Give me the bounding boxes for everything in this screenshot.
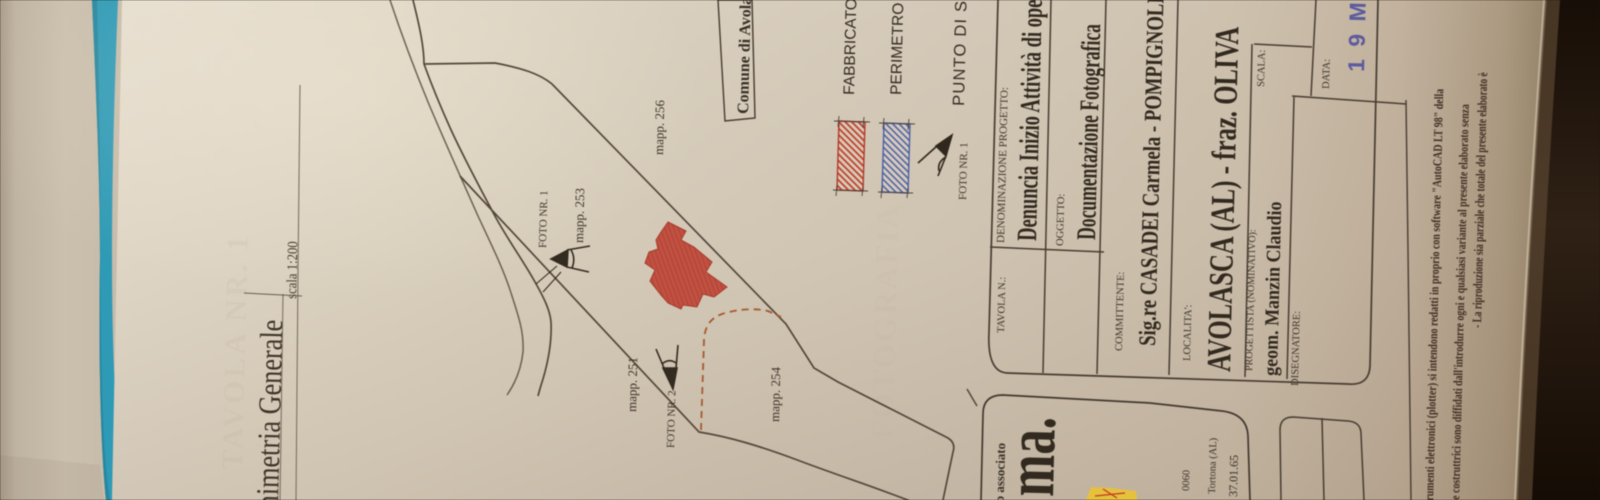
- svg-text:ma.: ma.: [992, 416, 1071, 498]
- svg-text:SCALA:: SCALA:: [1256, 49, 1268, 87]
- svg-text:FOTO NR. 2: FOTO NR. 2: [665, 390, 678, 448]
- svg-text:mapp. 251: mapp. 251: [624, 357, 640, 412]
- svg-text:mapp. 254: mapp. 254: [767, 366, 783, 422]
- svg-text:TAVOLA NR. 1: TAVOLA NR. 1: [216, 233, 255, 471]
- svg-text:1 9 MAG. 2005: 1 9 MAG. 2005: [1343, 0, 1374, 72]
- svg-text:FOTOGRAFIA: FOTOGRAFIA: [864, 203, 906, 440]
- svg-text:geom. Manzin Claudio: geom. Manzin Claudio: [1260, 201, 1286, 376]
- svg-text:FOTO NR. 1: FOTO NR. 1: [957, 142, 970, 200]
- svg-text:mapp. 256: mapp. 256: [651, 99, 667, 155]
- svg-text:FOTO NR. 1: FOTO NR. 1: [537, 190, 550, 248]
- svg-text:mapp. 253: mapp. 253: [571, 188, 587, 243]
- svg-text:COMMITTENTE:: COMMITTENTE:: [1114, 271, 1127, 351]
- svg-text:LOCALITA':: LOCALITA':: [1182, 304, 1194, 361]
- svg-text:DATA:: DATA:: [1321, 59, 1333, 89]
- svg-text:Planimetria Generale: Planimetria Generale: [250, 319, 290, 500]
- svg-text:Tortona (AL): Tortona (AL): [1207, 437, 1219, 494]
- svg-text:DISEGNATORE:: DISEGNATORE:: [1290, 311, 1303, 386]
- svg-text:Documentazione Fotografica: Documentazione Fotografica: [1071, 23, 1106, 240]
- svg-text:TAVOLA N.:: TAVOLA N.:: [996, 277, 1008, 333]
- svg-text:OGGETTO:: OGGETTO:: [1055, 193, 1067, 246]
- svg-text:37.01.65: 37.01.65: [1226, 455, 1241, 497]
- svg-text:0060: 0060: [1181, 470, 1193, 491]
- svg-text:Comune di Avolasca: Comune di Avolasca: [735, 0, 755, 114]
